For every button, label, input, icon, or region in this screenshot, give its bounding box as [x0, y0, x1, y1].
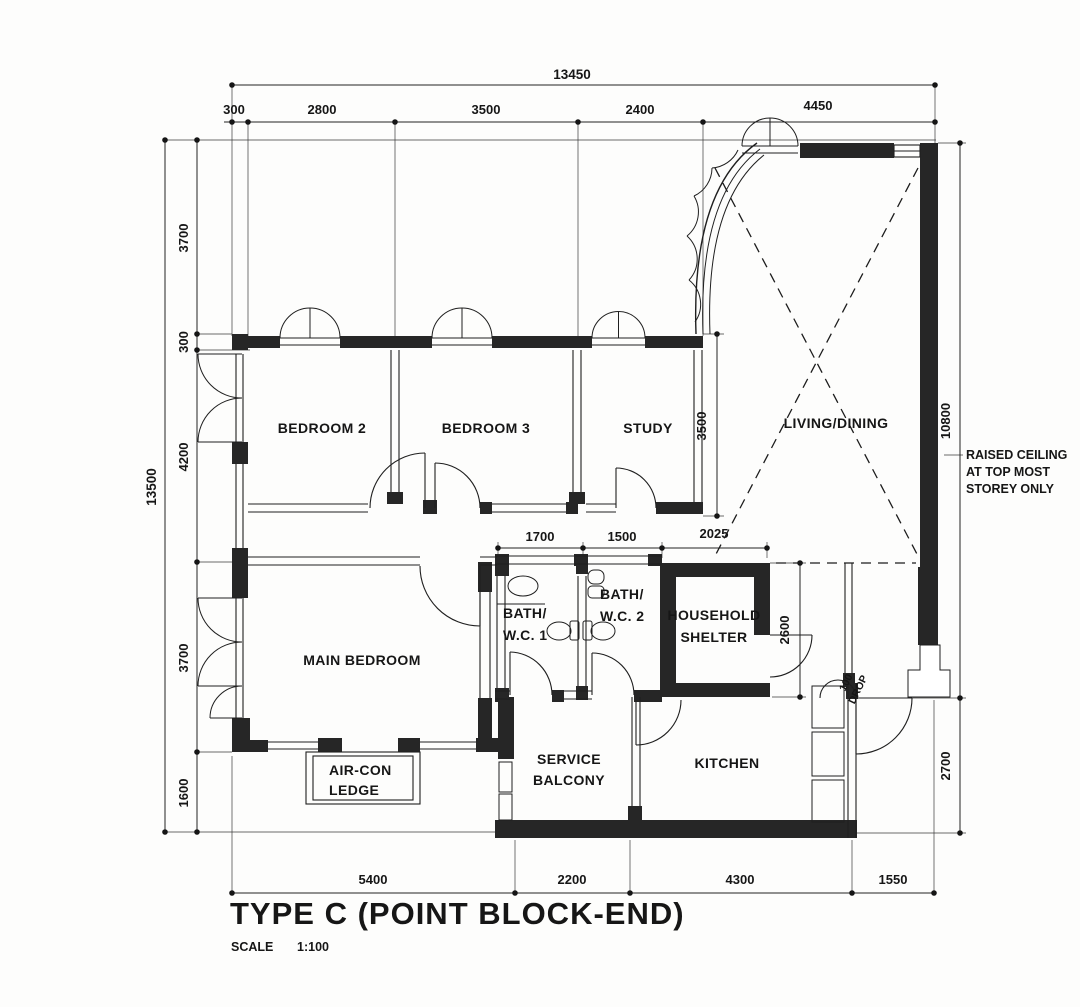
bath2-basin [588, 570, 604, 584]
room-label-kitchen: KITCHEN [694, 755, 759, 771]
room-label-bedroom-2: BEDROOM 2 [278, 420, 366, 436]
dim-top-total: 13450 [553, 67, 591, 82]
room-label-living-dining: LIVING/DINING [784, 415, 889, 431]
dim-left-3700a: 3700 [176, 224, 191, 253]
bath1-toilet [547, 622, 571, 640]
room-label-bath1-line2: W.C. 1 [503, 627, 547, 643]
room-label-aircon-line2: LEDGE [329, 782, 379, 798]
dim-right-10800: 10800 [938, 403, 953, 439]
scale-label: SCALE [231, 940, 273, 954]
floor-plan-drawing: 13450 300 2800 3500 2400 4450 13500 3700… [0, 0, 1080, 1007]
dim-study-3500: 3500 [694, 412, 709, 441]
kitchen-cabinet [812, 686, 844, 728]
dim-left-3700b: 3700 [176, 644, 191, 673]
dim-left-4200: 4200 [176, 443, 191, 472]
room-label-shelter-line2: SHELTER [680, 629, 747, 645]
dim-right-2700: 2700 [938, 752, 953, 781]
dim-left-300: 300 [176, 331, 191, 353]
room-label-main-bedroom: MAIN BEDROOM [303, 652, 421, 668]
bath1-basin [508, 576, 538, 596]
room-label-service-line2: BALCONY [533, 772, 605, 788]
dim-bottom-5400: 5400 [359, 872, 388, 887]
dim-bath1-1700: 1700 [526, 529, 555, 544]
title-block: TYPE C (POINT BLOCK-END) SCALE 1:100 [230, 896, 685, 954]
dim-top-4450: 4450 [804, 98, 833, 113]
dim-top-2400: 2400 [626, 102, 655, 117]
dim-top-2800: 2800 [308, 102, 337, 117]
walls [232, 143, 938, 838]
dim-bath2-1500: 1500 [608, 529, 637, 544]
room-label-study: STUDY [623, 420, 673, 436]
scale-value: 1:100 [297, 940, 329, 954]
dim-bottom-2200: 2200 [558, 872, 587, 887]
dim-top-300: 300 [223, 102, 245, 117]
dim-shelter-2025: 2025 [700, 526, 729, 541]
room-label-bath2-line1: BATH/ [600, 586, 644, 602]
door-swings [370, 453, 912, 754]
lobby-column [908, 645, 950, 697]
raised-ceiling-note-line1: RAISED CEILING [966, 448, 1067, 462]
room-label-bedroom-3: BEDROOM 3 [442, 420, 530, 436]
dim-left-1600: 1600 [176, 779, 191, 808]
balcony-fixture [499, 762, 512, 792]
room-labels: BEDROOM 2 BEDROOM 3 STUDY LIVING/DINING … [278, 415, 889, 798]
raised-ceiling-note-line2: AT TOP MOST [966, 465, 1050, 479]
drawing-title: TYPE C (POINT BLOCK-END) [230, 896, 685, 931]
curved-window-wall [696, 143, 764, 334]
room-label-shelter-line1: HOUSEHOLD [667, 607, 760, 623]
annotations: RAISED CEILING AT TOP MOST STOREY ONLY 1… [837, 448, 1067, 706]
dim-shelter-2600: 2600 [777, 616, 792, 645]
room-label-bath2-line2: W.C. 2 [600, 608, 644, 624]
bath2-toilet [591, 622, 615, 640]
room-label-bath1-line1: BATH/ [503, 605, 547, 621]
raised-ceiling-note-line3: STOREY ONLY [966, 482, 1055, 496]
raised-ceiling-extent-lines [715, 168, 918, 563]
dim-bottom-4300: 4300 [726, 872, 755, 887]
dim-left-total: 13500 [144, 468, 159, 506]
room-label-aircon-line1: AIR-CON [329, 762, 392, 778]
dim-top-3500: 3500 [472, 102, 501, 117]
floor-plan-sheet: 13450 300 2800 3500 2400 4450 13500 3700… [0, 0, 1080, 1007]
room-label-service-line1: SERVICE [537, 751, 601, 767]
dim-bottom-1550: 1550 [879, 872, 908, 887]
